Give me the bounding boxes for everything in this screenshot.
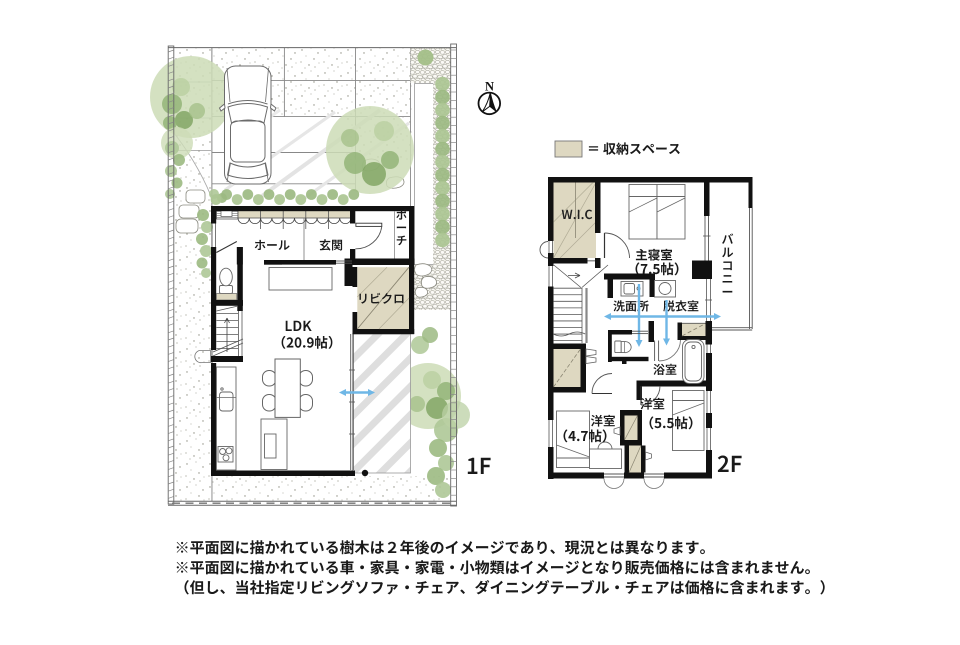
svg-text:N: N [485, 80, 494, 94]
